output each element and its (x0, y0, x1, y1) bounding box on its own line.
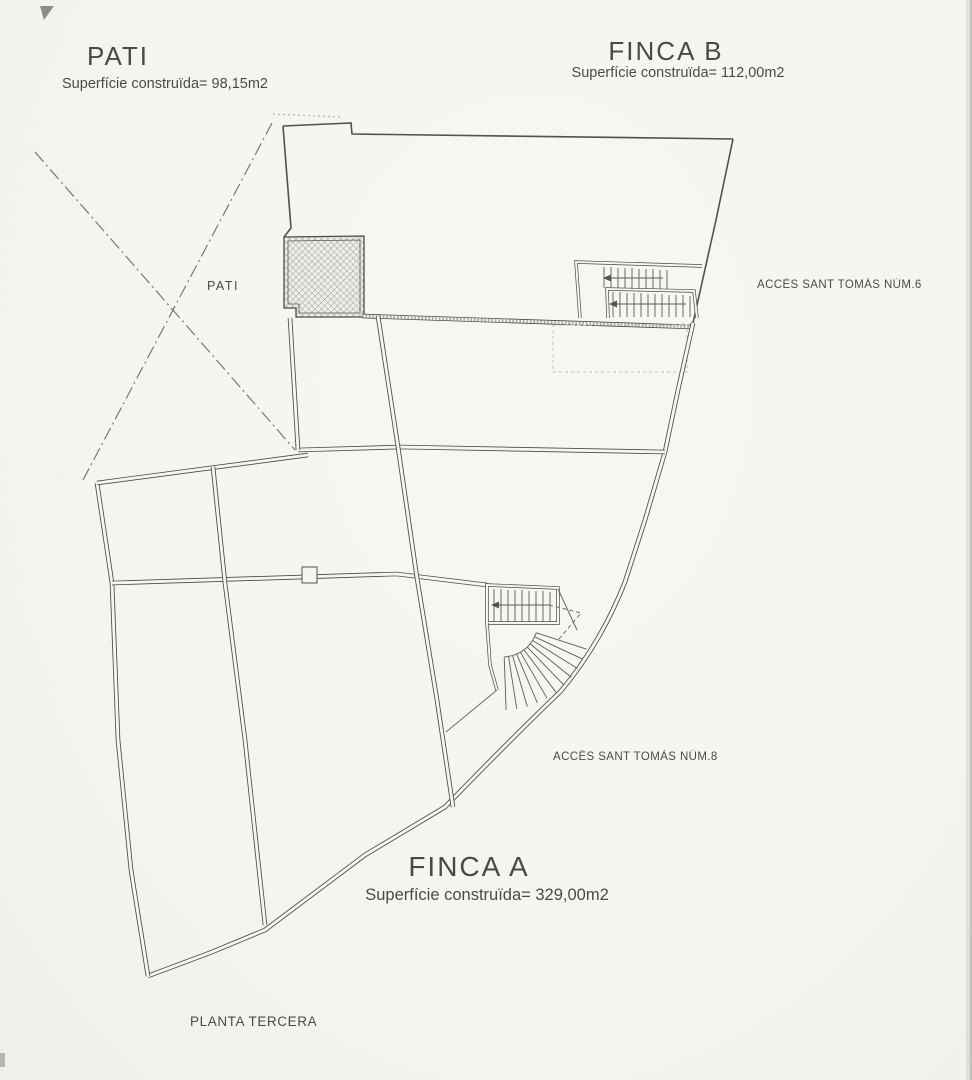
scanned-floor-plan-page: PATI Superfície construïda= 98,15m2 FINC… (0, 0, 972, 1080)
left-exterior-wall-inner (97, 483, 148, 976)
phantom-dashed-rect (553, 325, 687, 372)
patio-edge-wall-inner (97, 455, 308, 483)
finca-b-top-wall (283, 123, 733, 139)
stair8-right-wall (558, 589, 577, 630)
finca-b-right-wall (693, 139, 733, 323)
wall-notch (302, 567, 317, 583)
finca-b-dotted-stub (273, 114, 340, 117)
floor-title: PLANTA TERCERA (190, 1014, 317, 1029)
floor-plan-svg: PATI Superfície construïda= 98,15m2 FINC… (0, 0, 972, 1080)
finca-b-title: FINCA B (608, 36, 723, 66)
skylight-outer-border (284, 236, 364, 317)
skylight-hatched-square (284, 236, 364, 317)
stair6-inner-wall (607, 289, 697, 318)
pati-diagonal-line-1 (35, 152, 295, 450)
stair8-connector-wall (446, 690, 497, 732)
skylight-down-wall-inner (290, 318, 298, 450)
middle-vertical-divider-inner (398, 447, 453, 807)
finca-b-block (273, 114, 733, 372)
scan-corner-mark (40, 6, 54, 20)
access-num8-label: ACCÉS SANT TOMÀS NÚM.8 (553, 750, 718, 763)
stair-num8 (446, 585, 587, 732)
stair6-lower-treads (613, 292, 690, 317)
upper-band-divider-inner (378, 316, 398, 447)
finca-a-title: FINCA A (408, 851, 529, 882)
left-exterior-wall-outer (97, 483, 148, 976)
finca-b-left-wall (283, 126, 291, 237)
pati-boundary-lines (35, 123, 295, 480)
pati-area-label: Superfície construïda= 98,15m2 (62, 76, 268, 92)
stair8-arrow-head (491, 602, 499, 609)
finca-b-area-label: Superfície construïda= 112,00m2 (572, 65, 785, 81)
pati-diagonal-line-2 (83, 123, 272, 480)
stair6-inner-wall-fill (607, 289, 697, 318)
left-vertical-divider-inner (213, 467, 265, 925)
scan-artifacts (0, 0, 972, 1080)
labels: PATI Superfície construïda= 98,15m2 FINC… (62, 36, 922, 1029)
stair8-block-treads (494, 589, 550, 622)
pati-room-label: PATI (207, 279, 239, 293)
scan-left-mark (0, 1053, 5, 1067)
stair-num6 (576, 262, 702, 318)
finca-a-area-label: Superfície construïda= 329,00m2 (365, 886, 609, 904)
finca-a-block (97, 316, 693, 976)
pati-title: PATI (87, 41, 149, 71)
access-num6-label: ACCÉS SANT TOMÀS NÚM.6 (757, 278, 922, 291)
